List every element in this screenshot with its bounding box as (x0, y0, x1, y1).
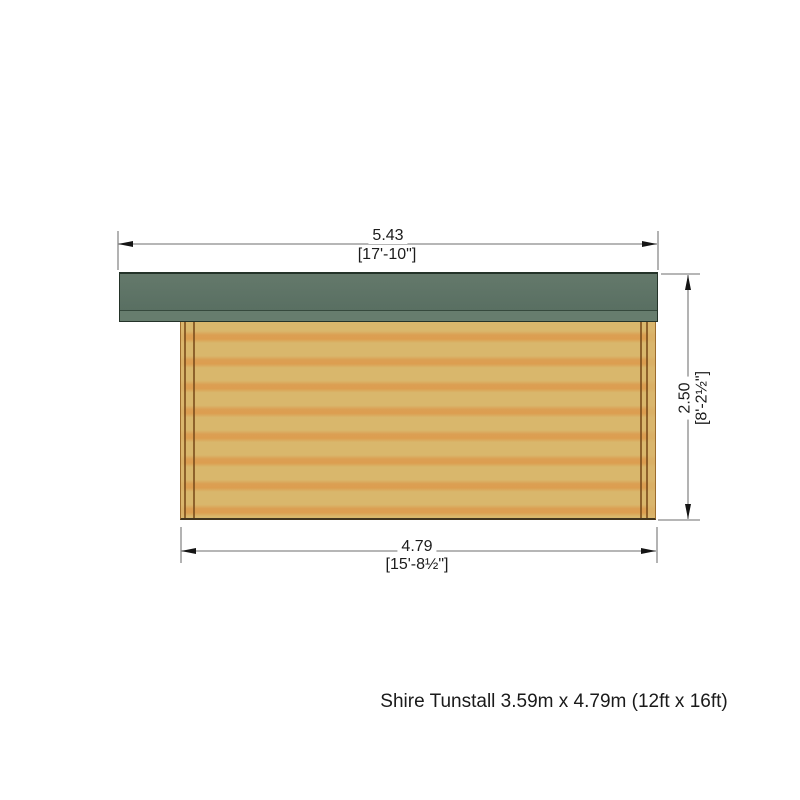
arrowhead (685, 275, 691, 290)
arrowhead (118, 241, 133, 247)
dim-right-metric: 2.50 (677, 376, 694, 419)
corner-post-left (181, 322, 198, 518)
corner-post-seam (646, 322, 648, 518)
log-wall (180, 322, 656, 520)
dim-top-imperial: [17'-10"] (354, 246, 421, 263)
arrowhead (181, 548, 196, 554)
corner-post-seam (193, 322, 195, 518)
dim-bottom-imperial: [15'-8½"] (382, 556, 453, 573)
product-caption: Shire Tunstall 3.59m x 4.79m (12ft x 16f… (380, 691, 727, 713)
arrowhead (641, 548, 656, 554)
roof-panel (120, 274, 657, 310)
roof (119, 272, 658, 322)
corner-post-right (638, 322, 655, 518)
corner-post-edge (648, 322, 655, 518)
corner-post-seam (184, 322, 186, 518)
dim-bottom-metric: 4.79 (397, 538, 436, 555)
arrowhead (642, 241, 657, 247)
dim-right-imperial: [8'-2½"] (694, 365, 711, 431)
dim-top-metric: 5.43 (368, 227, 407, 244)
arrowhead (685, 504, 691, 519)
elevation-diagram: 5.43 [17'-10"] 2.50 [8'-2½"] 4.79 [15'-8… (0, 0, 800, 800)
roof-fascia (120, 310, 657, 321)
corner-post-seam (640, 322, 642, 518)
